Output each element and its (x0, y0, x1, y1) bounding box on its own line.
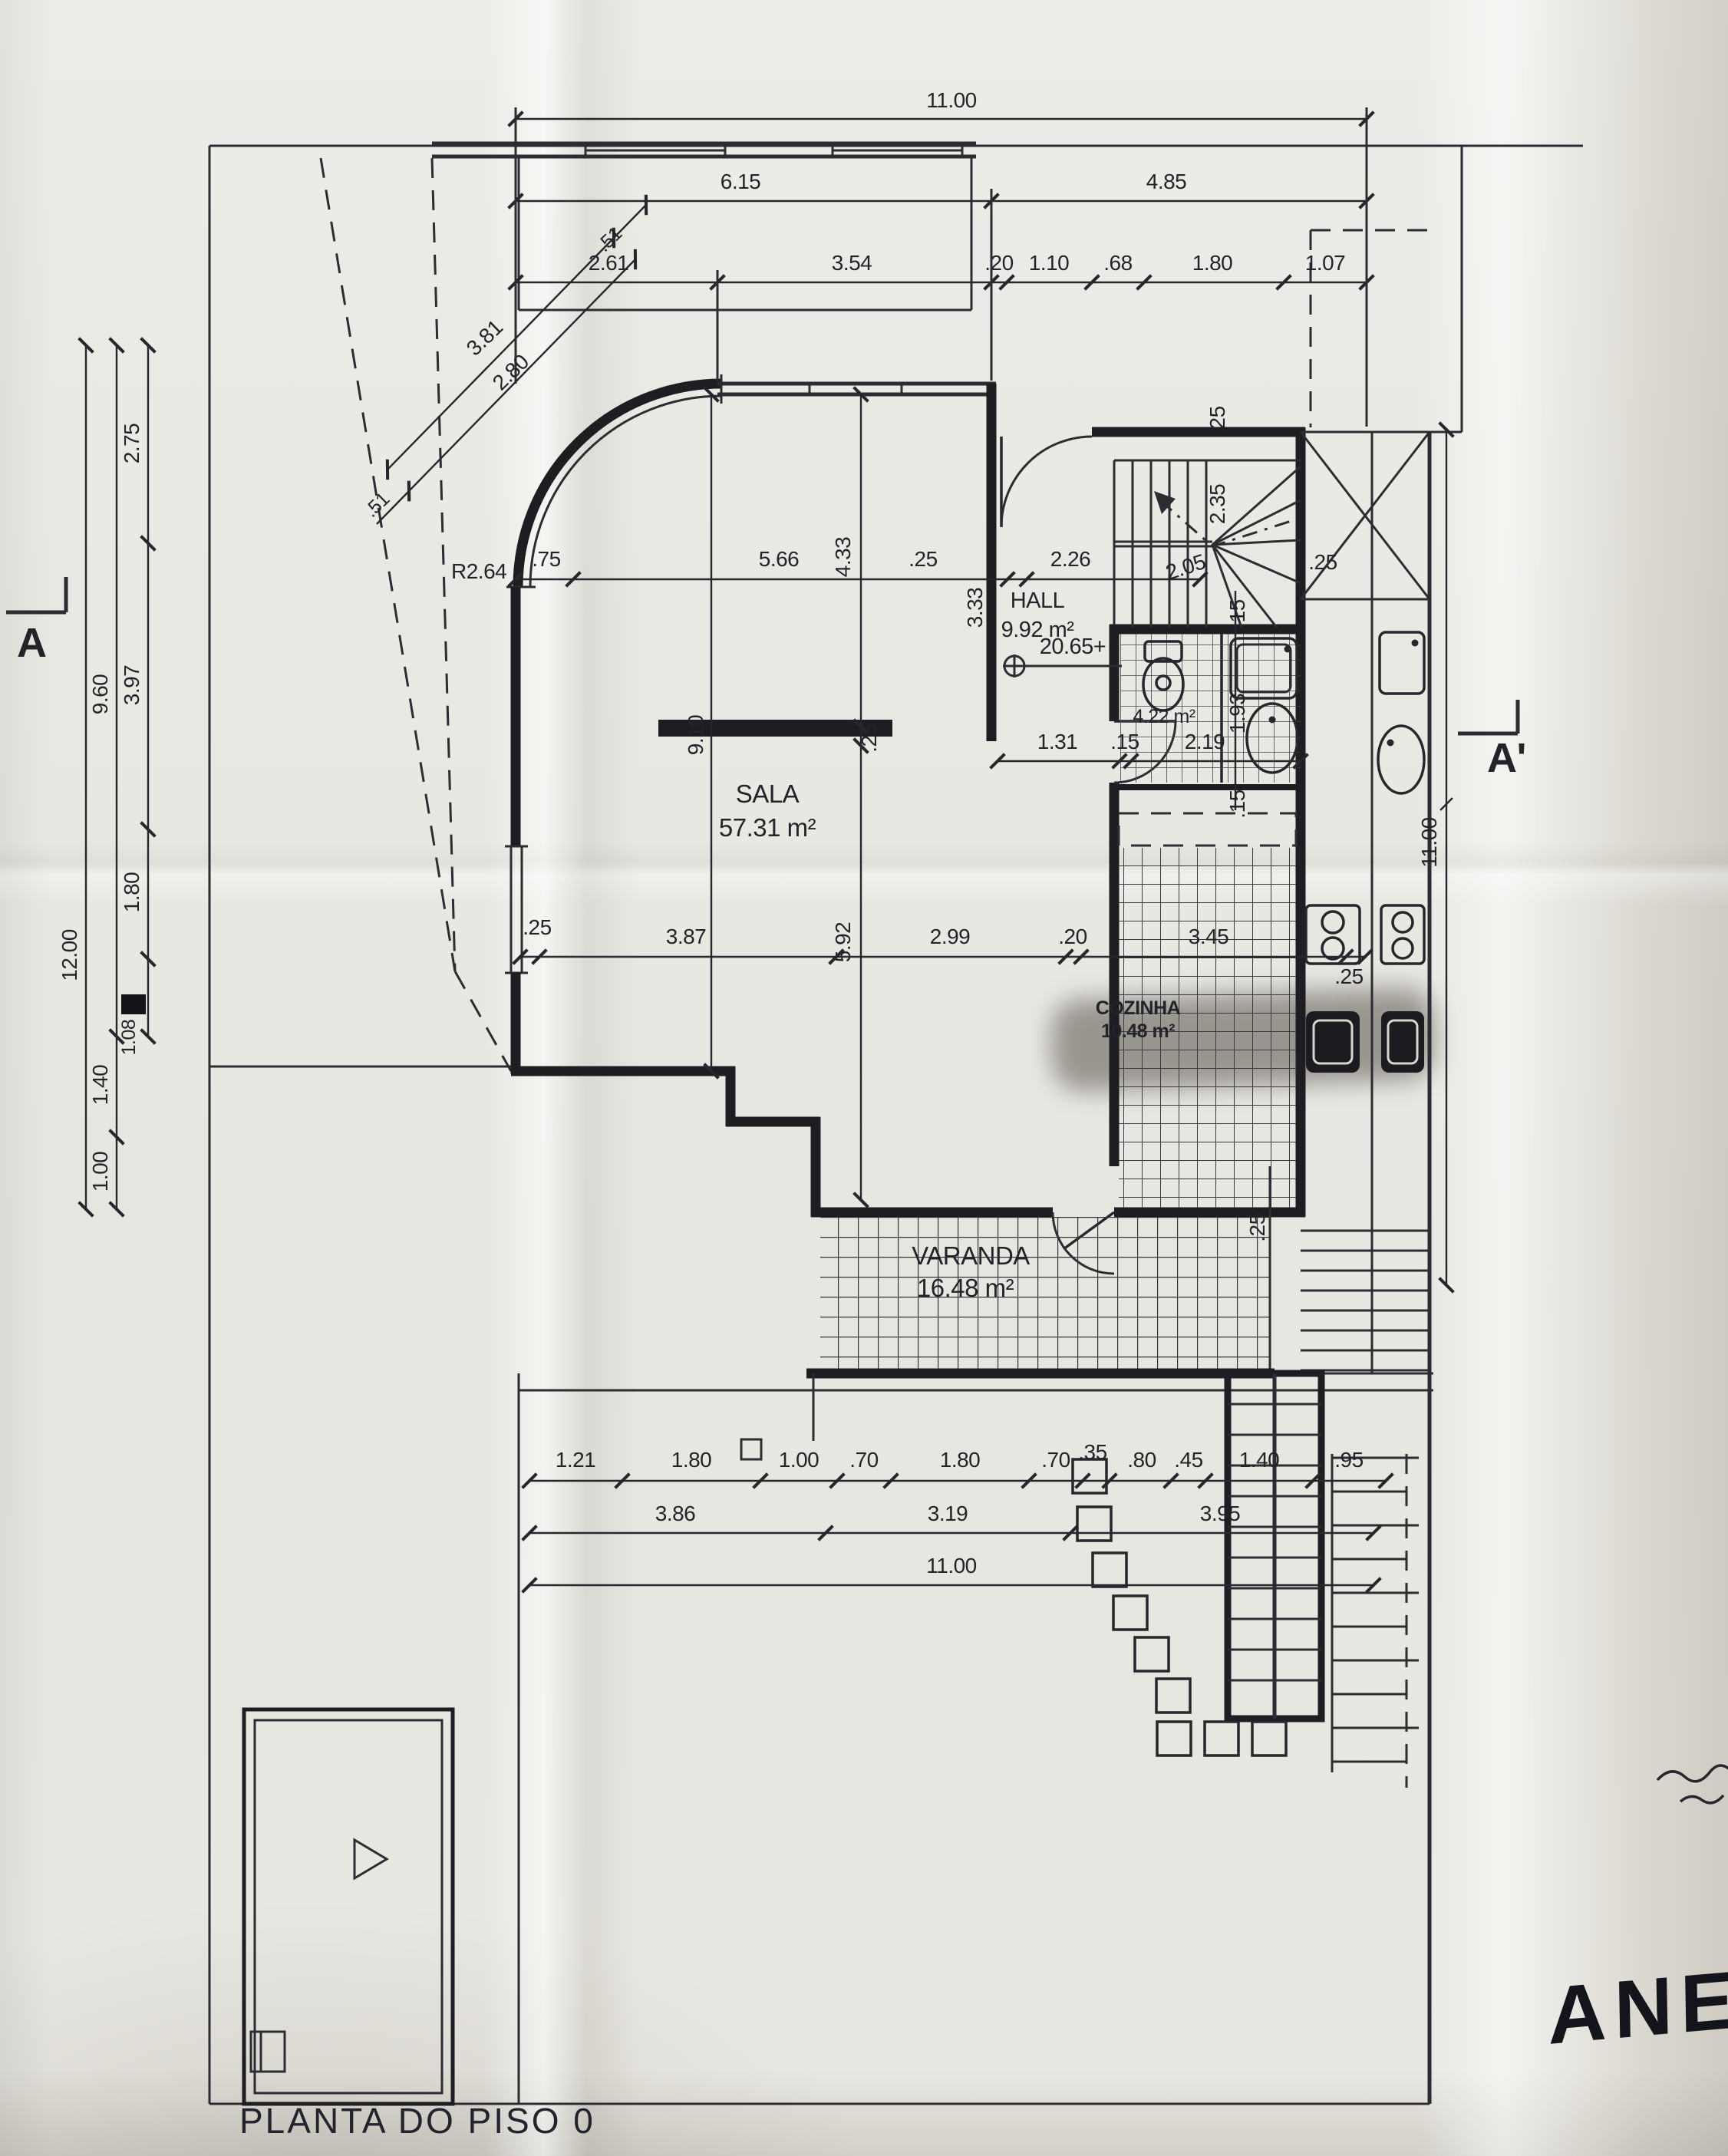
floor-plan-sheet: 11.00 6.15 4.85 2.61 3.54 .20 1.10 .68 1… (0, 0, 1728, 2156)
dim-label: .15 (1225, 790, 1249, 818)
dim-label: 3.33 (963, 588, 987, 628)
dim-label: .15 (1225, 599, 1249, 628)
dim-label: 2.26 (1050, 547, 1091, 571)
dim-label: .15 (1110, 730, 1139, 753)
dim-label: 1.93 (1225, 694, 1249, 734)
room-name-sala: SALA (736, 780, 800, 808)
dim-label: .70 (849, 1448, 878, 1472)
dim-label: 1.00 (88, 1152, 112, 1192)
bottom-dimension-chain: 1.21 1.80 1.00 .70 1.80 .70 .35 .80 .45 … (529, 1440, 1386, 1585)
dim-label: 3.54 (832, 251, 872, 275)
dim-label: 3.45 (1189, 925, 1229, 948)
dim-label: .20 (1058, 925, 1087, 948)
dim-label: 12.00 (58, 929, 81, 981)
dim-label: 1.10 (1029, 251, 1070, 275)
pool-ladder (251, 2032, 285, 2072)
dim-label: .25 (857, 724, 881, 752)
dim-label: .25 (909, 547, 937, 571)
pool-triangle-icon (355, 1840, 387, 1878)
dim-label: .25 (1245, 1213, 1269, 1241)
kitchen-cabinets-dashed (1119, 813, 1296, 846)
cooktop (1306, 905, 1360, 964)
room-area-varanda: 16.48 m² (917, 1274, 1014, 1302)
dim-label: .51 (361, 489, 394, 522)
outdoor-cooktop (1381, 905, 1424, 964)
dim-label: .75 (532, 547, 560, 571)
mid-row-dimensions: .75 5.66 .25 2.26 (516, 547, 1200, 579)
section-marker-a: A (6, 577, 66, 666)
sheet-title: PLANTA DO PISO 0 (239, 2101, 595, 2141)
right-garden-steps (1332, 1454, 1419, 1788)
floor-plan-drawing: 11.00 6.15 4.85 2.61 3.54 .20 1.10 .68 1… (0, 0, 1728, 2156)
stepping-stones (1073, 1459, 1286, 1755)
room-name-cozinha: COZINHA (1096, 997, 1181, 1019)
room-name-varanda: VARANDA (912, 1241, 1030, 1270)
handwritten-scribble (1657, 1765, 1728, 1803)
dim-label: .95 (1334, 1448, 1363, 1472)
dim-label: .25 (1308, 550, 1337, 574)
dim-label: 11.00 (1417, 817, 1441, 868)
dim-label: .25 (1334, 964, 1363, 988)
dim-label: .70 (1041, 1448, 1070, 1472)
external-stair (1228, 1373, 1321, 1719)
dim-label: 2.75 (120, 424, 143, 464)
boundary-post-marker (121, 994, 146, 1014)
dim-label: .25 (1205, 406, 1229, 434)
room-name-hall: HALL (1011, 588, 1065, 613)
handwritten-anexo: ANEXO (1547, 1943, 1728, 2062)
dim-label: .45 (1174, 1448, 1202, 1472)
dim-label: 9.10 (684, 715, 707, 756)
outdoor-oval-basin (1378, 726, 1424, 793)
dim-label: 2.80 (488, 350, 533, 395)
dim-label: 2.19 (1185, 730, 1225, 753)
dim-label: 4.33 (831, 537, 855, 578)
dim-label: 11.00 (926, 1554, 977, 1577)
dim-label: 3.95 (1200, 1502, 1241, 1525)
dim-label: 1.80 (120, 872, 143, 913)
dim-label: 1.00 (779, 1448, 819, 1472)
dim-label: 1.31 (1037, 730, 1078, 753)
dim-label: 1.40 (88, 1065, 112, 1106)
dim-label: 2.99 (930, 925, 971, 948)
dim-label: 1.80 (671, 1448, 712, 1472)
left-dimension-chain: 12.00 9.60 1.40 1.00 2.75 3.97 1.80 1.08 (58, 345, 148, 1209)
plot-boundary (209, 146, 1583, 2104)
dim-label: 4.85 (1146, 170, 1187, 193)
room-area-cozinha: 10.48 m² (1101, 1020, 1175, 1042)
dim-label: 5.66 (759, 547, 800, 571)
room-area-sala: 57.31 m² (719, 813, 816, 842)
entrance-door-arc (1001, 437, 1092, 527)
dim-label: 9.60 (88, 674, 112, 715)
dim-label: .35 (1078, 1440, 1106, 1464)
dim-label: 3.19 (928, 1502, 968, 1525)
dim-label: 3.87 (666, 925, 707, 948)
stair-direction-arrow (1154, 491, 1176, 514)
dim-label: 6.15 (721, 170, 761, 193)
dim-label: .80 (1127, 1448, 1156, 1472)
room-area-wc: 4.22 m² (1133, 706, 1195, 727)
dim-label: 2.35 (1205, 484, 1229, 525)
section-label-a-prime: A' (1487, 735, 1526, 781)
right-dimension: 11.00 (1417, 430, 1453, 1285)
dashed-projection-lines (321, 158, 511, 1071)
pool (244, 1709, 453, 2104)
dim-label: 1.80 (940, 1448, 981, 1472)
dim-label: 11.00 (926, 88, 977, 112)
dim-label: 1.07 (1305, 251, 1346, 275)
dim-label: 3.97 (120, 665, 143, 706)
dim-label: 1.40 (1239, 1448, 1280, 1472)
section-label-a: A (17, 620, 47, 666)
right-service-strip (1301, 230, 1430, 1373)
dim-label: 1.08 (118, 1020, 140, 1056)
dim-label: .25 (523, 915, 551, 939)
radius-label: R2.64 (451, 559, 506, 583)
dim-label: 3.86 (655, 1502, 696, 1525)
dim-label: .20 (984, 251, 1013, 275)
dim-label: 1.80 (1192, 251, 1233, 275)
dim-label: 1.21 (556, 1448, 596, 1472)
section-marker-a-prime: A' (1458, 700, 1526, 781)
level-value: 20.65+ (1040, 635, 1106, 659)
garage-block (432, 143, 976, 310)
top-dimension-chain: 11.00 6.15 4.85 2.61 3.54 .20 1.10 .68 1… (516, 88, 1367, 427)
dim-label: .68 (1103, 251, 1132, 275)
